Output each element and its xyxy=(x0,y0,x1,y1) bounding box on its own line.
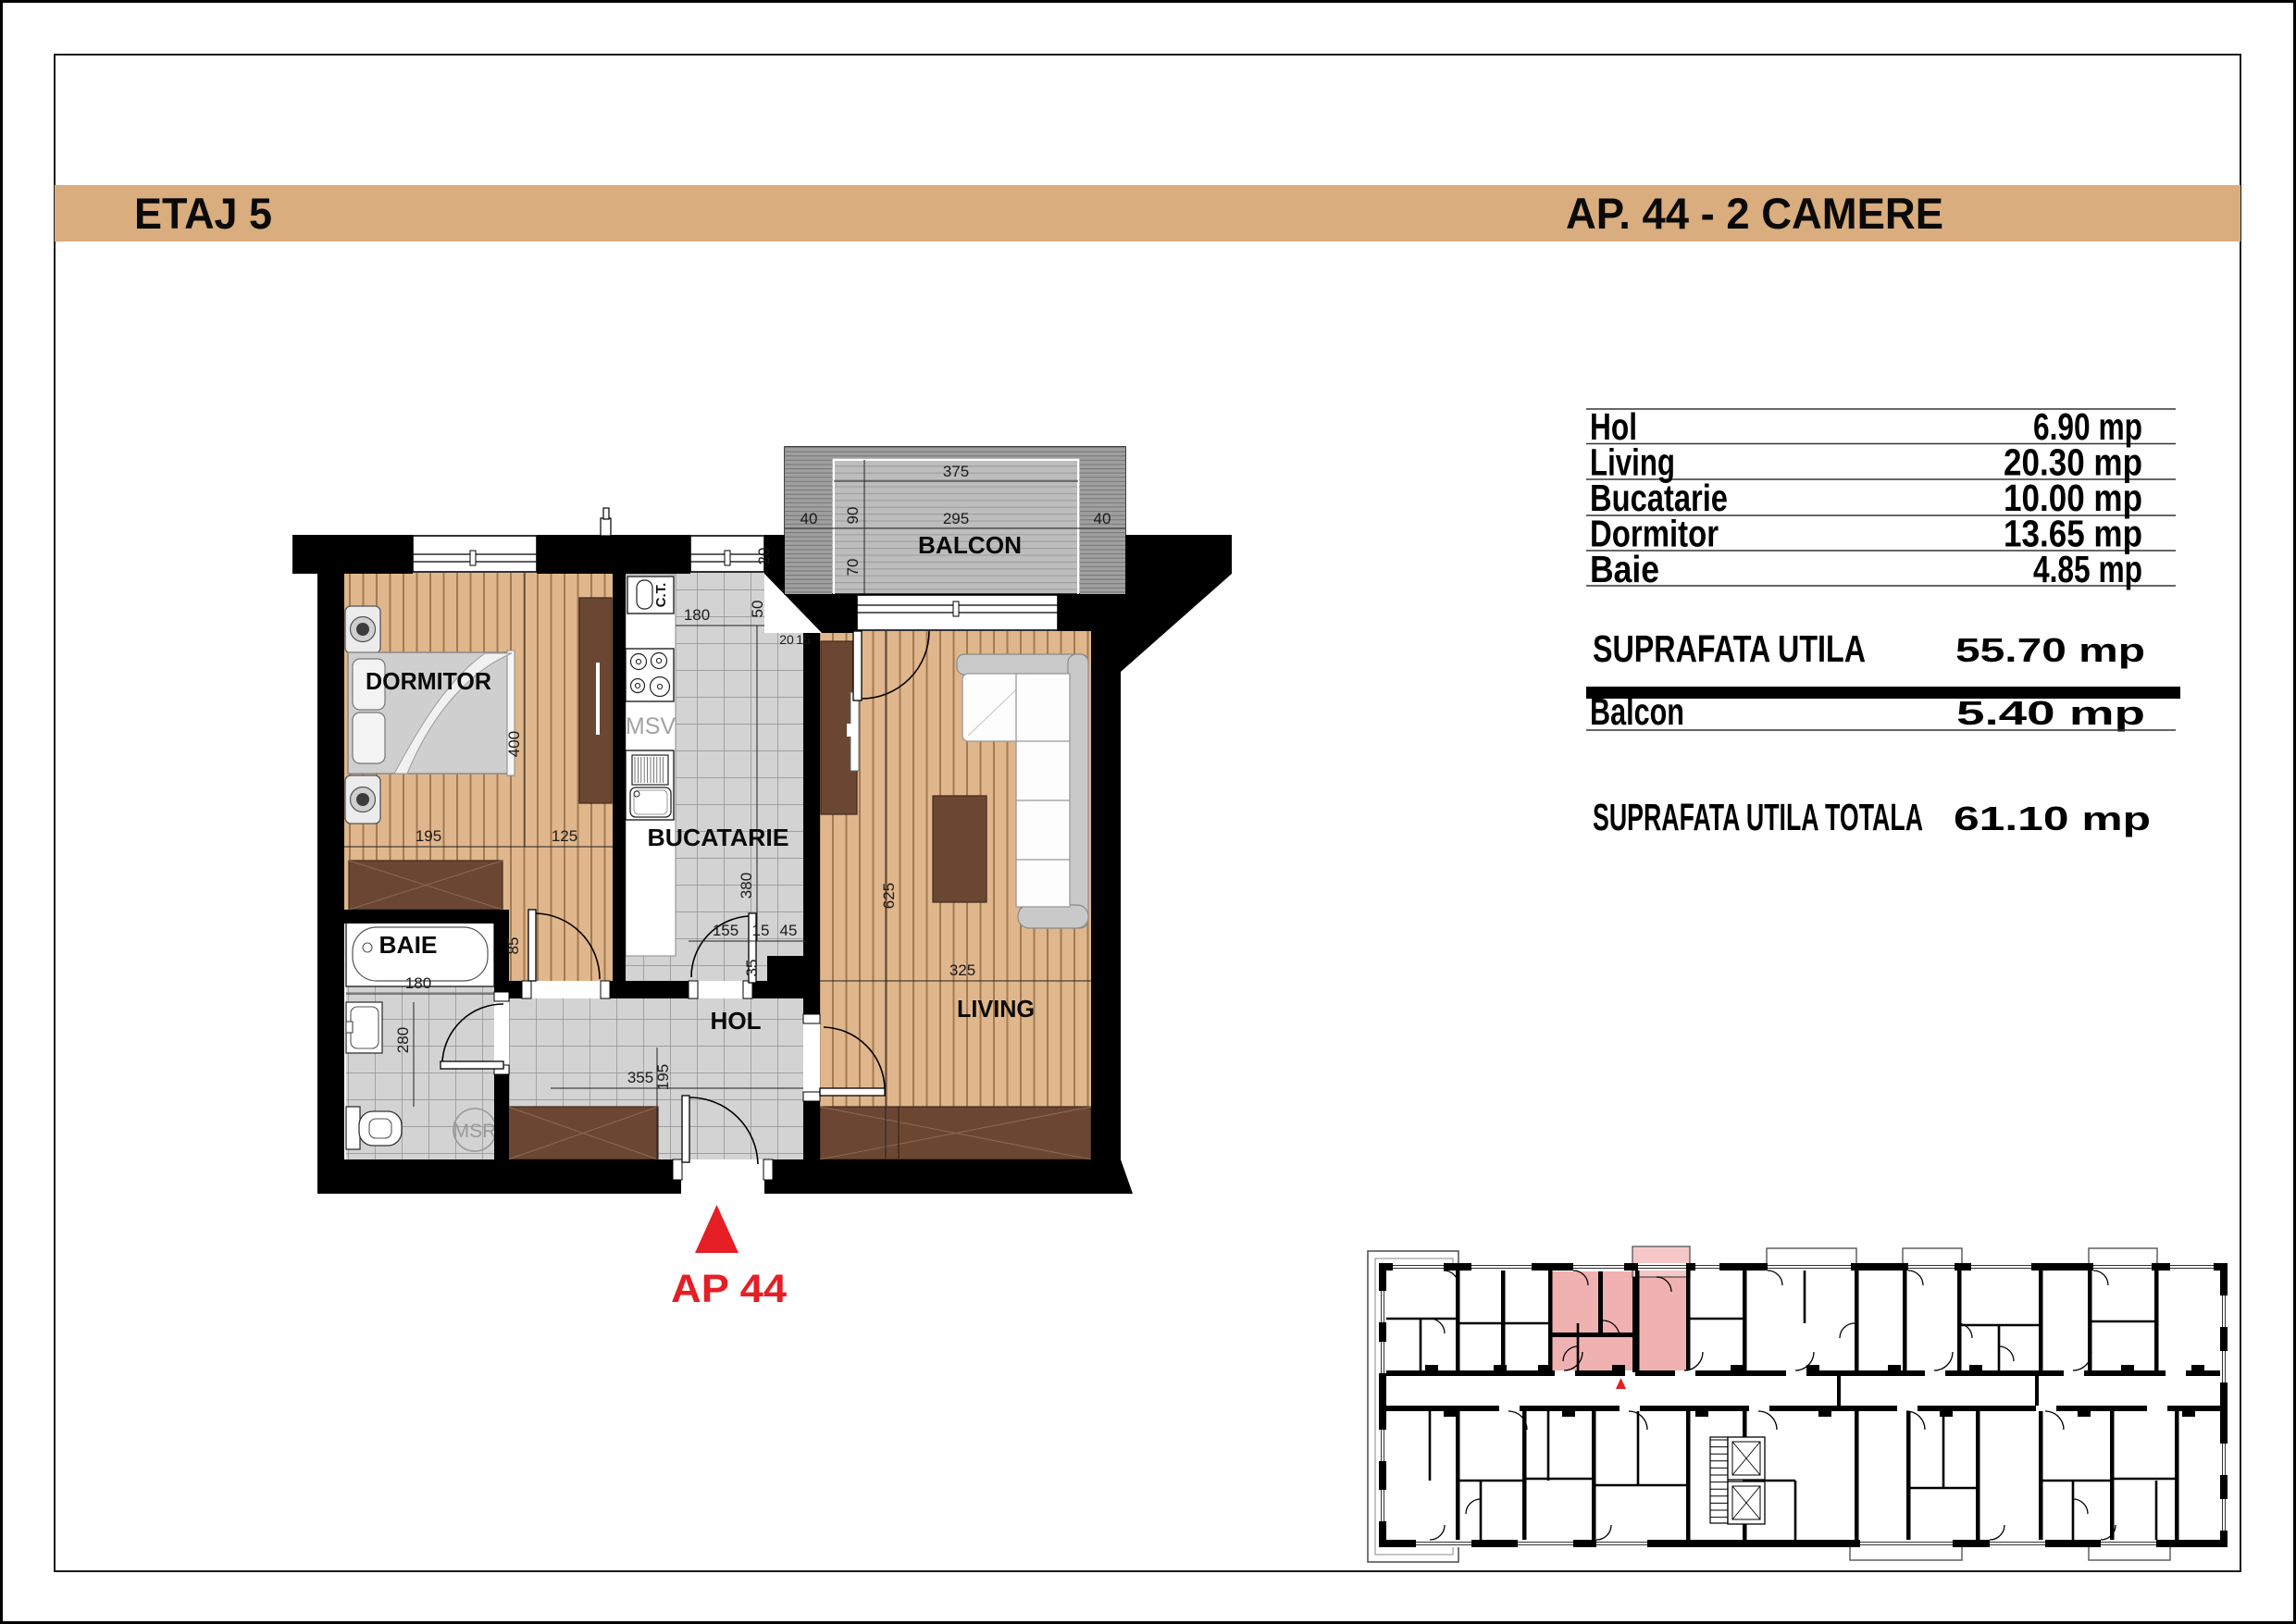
svg-text:ETAJ 5: ETAJ 5 xyxy=(134,189,272,238)
svg-text:155: 155 xyxy=(713,922,738,939)
svg-text:20: 20 xyxy=(779,632,794,647)
svg-text:40: 40 xyxy=(1094,510,1111,527)
svg-text:MSV: MSV xyxy=(626,713,676,739)
svg-text:40: 40 xyxy=(800,510,818,527)
svg-text:55.70 mp: 55.70 mp xyxy=(1955,631,2145,669)
svg-text:625: 625 xyxy=(880,883,898,909)
svg-text:195: 195 xyxy=(654,1064,672,1090)
svg-text:375: 375 xyxy=(943,463,969,480)
svg-text:MSR: MSR xyxy=(453,1121,497,1142)
svg-text:BUCATARIE: BUCATARIE xyxy=(648,824,789,851)
svg-text:180: 180 xyxy=(684,606,710,624)
svg-text:61.10 mp: 61.10 mp xyxy=(1954,800,2151,837)
svg-text:SUPRAFATA UTILA TOTALA: SUPRAFATA UTILA TOTALA xyxy=(1593,796,1923,838)
svg-text:180: 180 xyxy=(405,974,431,992)
svg-text:380: 380 xyxy=(738,873,755,899)
svg-text:Balcon: Balcon xyxy=(1590,690,1684,733)
svg-text:4.85 mp: 4.85 mp xyxy=(2033,548,2142,590)
svg-text:5.40 mp: 5.40 mp xyxy=(1956,694,2145,732)
svg-text:SUPRAFATA UTILA: SUPRAFATA UTILA xyxy=(1593,627,1866,670)
svg-text:85: 85 xyxy=(504,937,522,955)
svg-text:15: 15 xyxy=(796,632,811,647)
svg-text:325: 325 xyxy=(949,961,975,979)
svg-text:45: 45 xyxy=(780,922,798,939)
svg-text:LIVING: LIVING xyxy=(957,995,1035,1023)
svg-text:280: 280 xyxy=(394,1027,412,1053)
svg-text:125: 125 xyxy=(552,827,577,845)
svg-text:195: 195 xyxy=(416,827,441,845)
svg-text:DORMITOR: DORMITOR xyxy=(366,667,491,695)
svg-text:35: 35 xyxy=(743,960,761,977)
svg-text:400: 400 xyxy=(505,731,523,757)
svg-text:BAIE: BAIE xyxy=(379,931,438,959)
svg-text:HOL: HOL xyxy=(711,1007,762,1035)
svg-text:70: 70 xyxy=(844,559,862,576)
svg-text:355: 355 xyxy=(627,1069,653,1086)
svg-text:20: 20 xyxy=(755,548,773,565)
svg-text:90: 90 xyxy=(844,507,862,525)
svg-text:50: 50 xyxy=(749,601,766,618)
svg-text:C.T.: C.T. xyxy=(653,583,669,608)
svg-text:Baie: Baie xyxy=(1590,548,1659,590)
svg-text:BALCON: BALCON xyxy=(918,531,1022,559)
svg-text:15: 15 xyxy=(752,922,770,939)
svg-text:AP. 44 - 2 CAMERE: AP. 44 - 2 CAMERE xyxy=(1566,189,1943,238)
svg-text:AP 44: AP 44 xyxy=(671,1267,787,1311)
svg-text:295: 295 xyxy=(943,510,969,527)
